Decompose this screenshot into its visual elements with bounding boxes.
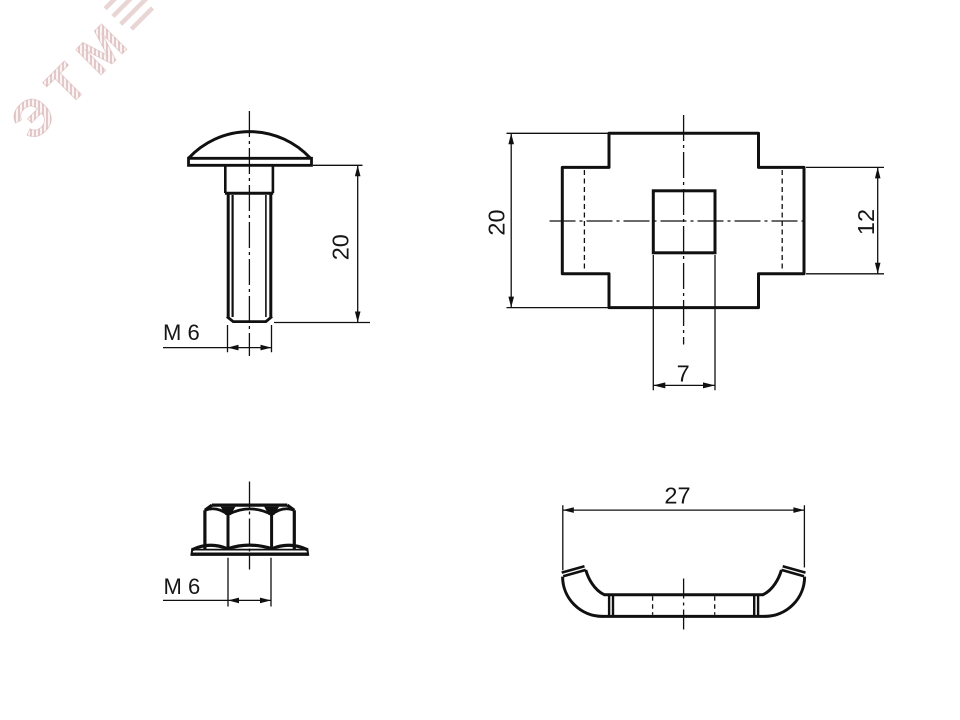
svg-text:20: 20 <box>327 234 353 260</box>
svg-text:12: 12 <box>853 209 879 235</box>
svg-text:20: 20 <box>484 209 510 235</box>
svg-text:27: 27 <box>664 483 690 509</box>
svg-text:M 6: M 6 <box>163 320 200 345</box>
svg-text:7: 7 <box>677 360 690 386</box>
svg-text:M 6: M 6 <box>164 574 201 599</box>
